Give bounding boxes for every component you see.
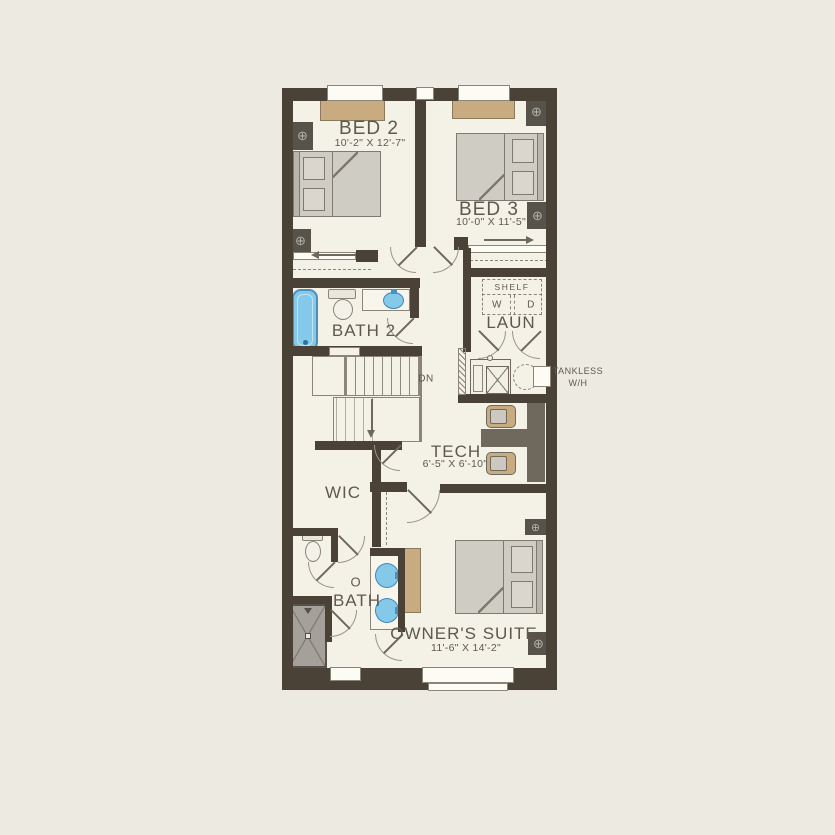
bed-headboard xyxy=(294,152,300,216)
washer-label: W xyxy=(492,300,502,311)
bed3-closet-sliding-door xyxy=(468,245,548,253)
ceiling-fixture-icon xyxy=(292,122,313,150)
wall-shower-top xyxy=(287,596,332,604)
bathtub xyxy=(292,289,318,351)
bed2-bed xyxy=(293,151,381,217)
tankless-label-line1: TANKLESS xyxy=(553,366,603,376)
bed-fold xyxy=(332,152,358,178)
stairs-lower-flight xyxy=(333,397,420,442)
bathtub-faucet xyxy=(303,340,308,345)
stairs-direction-line xyxy=(371,399,373,430)
window-bath-bottom xyxy=(330,667,361,681)
wall-bath2-top xyxy=(287,278,420,288)
wall-bed3-closet-bottom xyxy=(463,268,557,277)
bed2-dims: 10'-2" X 12'-7" xyxy=(335,137,406,149)
toilet-tank xyxy=(328,289,356,299)
tech-dims: 6'-5" X 6'-10" xyxy=(423,458,488,470)
wall-laundry-left xyxy=(463,248,471,352)
tankless-water-heater xyxy=(533,366,551,387)
bed-fold xyxy=(478,587,504,613)
slide-arrow-icon xyxy=(311,251,319,259)
stairs-down-arrow-icon xyxy=(367,430,375,438)
owner-bath-prefix: O xyxy=(350,575,361,590)
owner-bath-sink-1 xyxy=(375,563,399,588)
stairs-dn-label: DN xyxy=(418,374,433,385)
stairs-hall-line xyxy=(420,356,422,442)
wall-mech-bottom xyxy=(458,394,557,403)
bed3-closet-shelf-dashed xyxy=(470,260,548,261)
desk-chair xyxy=(486,452,516,475)
stairs-upper-flight xyxy=(345,356,420,396)
tech-desk-return xyxy=(481,429,527,447)
tankless-label-line2: W/H xyxy=(569,378,588,388)
wall-exterior-bottom xyxy=(282,668,557,690)
bed-pillow xyxy=(303,188,325,211)
bathtub-inner xyxy=(297,294,313,346)
shower-head-icon xyxy=(304,608,312,614)
wall-owner-suite-top xyxy=(440,484,557,493)
wall-hall-stub xyxy=(370,482,407,492)
ceiling-fixture-icon xyxy=(525,519,546,535)
laundry-shelf-divider xyxy=(482,294,542,295)
bed3-dims: 10'-0" X 11'-5" xyxy=(456,216,526,228)
bed-pillow xyxy=(303,157,325,180)
ceiling-fixture-icon xyxy=(290,229,311,252)
bath2-sink xyxy=(383,292,404,309)
chair-seat xyxy=(490,456,507,471)
bed3-bed xyxy=(456,133,544,201)
owner-suite-bed xyxy=(455,540,543,614)
window-owner-suite xyxy=(422,667,514,683)
wall-bed2-closet-stub xyxy=(356,250,378,262)
bed-fold xyxy=(479,174,505,200)
wall-niche xyxy=(329,347,360,356)
bed2-closet-slide-line xyxy=(318,254,358,256)
owner-suite-dims: 11'-6" X 14'-2" xyxy=(431,642,501,654)
tech-desk xyxy=(527,402,545,482)
bed-headboard xyxy=(537,134,543,200)
wic-rod-dashed xyxy=(386,492,387,545)
wall-bath2-right xyxy=(410,278,419,318)
bed2-closet-shelf-dashed xyxy=(293,269,371,270)
toilet-bowl xyxy=(333,299,353,320)
bed-pillow xyxy=(512,139,534,163)
laundry-shelf-label: SHELF xyxy=(495,282,530,292)
wall-exterior-right xyxy=(546,88,557,690)
stairs-landing xyxy=(312,356,345,396)
window-owner-suite-sill xyxy=(428,683,508,691)
bed-pillow xyxy=(512,171,534,195)
cabinet-basin xyxy=(473,365,483,392)
bed-pillow xyxy=(511,546,533,573)
bed-headboard xyxy=(536,541,542,613)
wall-owner-bath-divider xyxy=(398,548,405,632)
shower-drain xyxy=(305,633,311,639)
window-bed2 xyxy=(327,85,383,101)
ceiling-fixture-icon xyxy=(527,202,548,229)
washer-dryer-divider xyxy=(514,295,515,315)
wall-wc-right xyxy=(331,528,338,562)
sink-faucet xyxy=(391,290,397,294)
shower xyxy=(288,604,327,668)
wall-bed-divider xyxy=(415,99,426,247)
window-bed3 xyxy=(458,85,510,101)
desk-chair xyxy=(486,405,516,428)
owner-bath-label: BATH xyxy=(333,591,381,611)
washer-dryer-divider xyxy=(510,295,511,315)
ceiling-fixture-icon xyxy=(526,98,547,126)
bath2-label: BATH 2 xyxy=(332,321,396,341)
chair-seat xyxy=(490,409,507,424)
wic-label: WIC xyxy=(325,483,361,503)
floor-plan: BED 2 10'-2" X 12'-7" BED 3 10'-0" X 11'… xyxy=(0,0,835,835)
cabinet-x-panel xyxy=(486,366,509,394)
bed3-closet-slide-line xyxy=(484,239,526,241)
laundry-label: LAUN xyxy=(486,313,535,333)
window-divider xyxy=(416,87,434,100)
owner-suite-label: OWNER'S SUITE xyxy=(390,624,538,644)
bed-pillow xyxy=(511,581,533,608)
dryer-label: D xyxy=(527,300,535,311)
wall-hatched-jamb xyxy=(458,348,466,395)
slide-arrow-icon xyxy=(526,236,534,244)
toilet-bowl xyxy=(305,541,321,562)
